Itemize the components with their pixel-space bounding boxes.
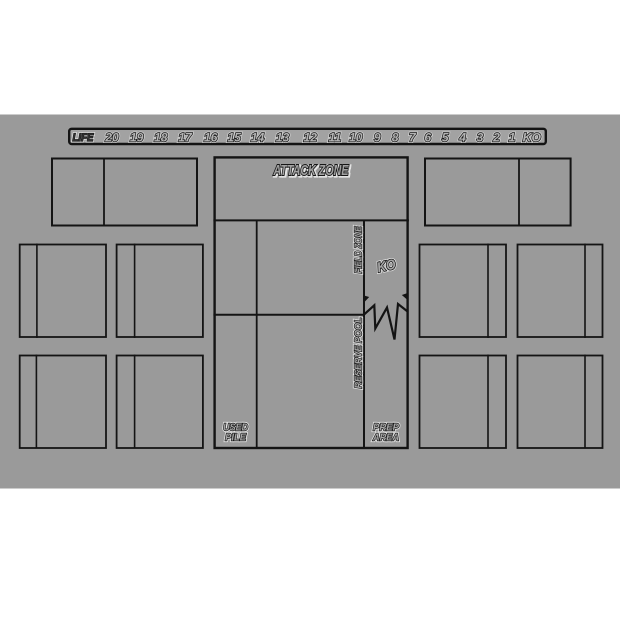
svg-text:FIELD ZONE: FIELD ZONE [352,226,364,274]
svg-text:ATTACK ZONE: ATTACK ZONE [273,163,350,179]
svg-text:LIFE: LIFE [73,132,95,144]
svg-text:PILE: PILE [225,432,247,444]
svg-text:RESERVE POOL: RESERVE POOL [352,318,364,389]
svg-text:AREA: AREA [372,432,399,444]
